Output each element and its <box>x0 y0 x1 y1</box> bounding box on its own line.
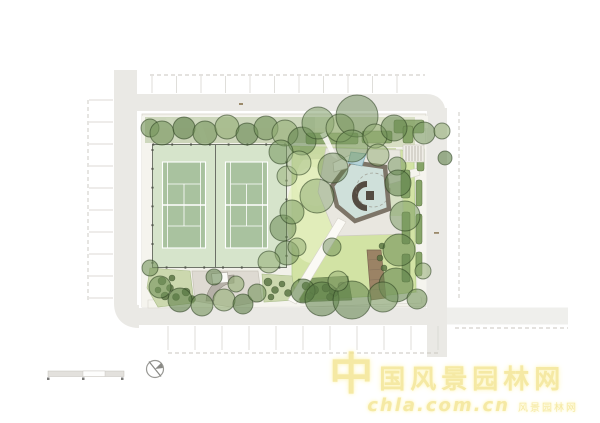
tree-canopy <box>381 115 407 141</box>
hedge <box>416 180 422 206</box>
tree-canopy <box>206 269 222 285</box>
road-marking <box>239 103 243 105</box>
tree-canopy <box>248 284 266 302</box>
building-core-block <box>366 191 374 200</box>
tree-canopy <box>215 115 239 139</box>
shrub <box>381 265 387 271</box>
tree-canopy <box>415 263 431 279</box>
tree-canopy <box>258 251 280 273</box>
shrub <box>285 290 292 297</box>
scale-tick <box>82 378 85 381</box>
tree-canopy <box>213 289 235 311</box>
shrub <box>377 255 383 261</box>
tree-canopy <box>142 260 158 276</box>
tennis-court-1 <box>163 162 206 248</box>
tree-canopy <box>150 121 174 145</box>
tree-canopy <box>368 282 398 312</box>
tree-canopy <box>228 276 244 292</box>
site-plan-drawing <box>0 0 600 423</box>
tree-canopy <box>288 238 306 256</box>
tree-canopy <box>390 201 420 231</box>
tree-canopy <box>438 151 452 165</box>
tree-canopy <box>173 117 195 139</box>
tree-canopy <box>385 170 411 196</box>
tree-canopy <box>280 200 304 224</box>
shrub <box>169 275 175 281</box>
street-north <box>137 103 437 114</box>
shrub <box>279 281 285 287</box>
tennis-courts <box>153 145 287 268</box>
tree-canopy <box>287 151 311 175</box>
tree-canopy <box>193 121 217 145</box>
tree-canopy <box>323 238 341 256</box>
tree-canopy <box>318 153 348 183</box>
tree-canopy <box>367 144 389 166</box>
street-west <box>126 70 140 317</box>
east-entrance-steps <box>403 145 424 162</box>
tree-canopy <box>434 123 450 139</box>
north-arrow <box>147 361 164 378</box>
road-marking <box>434 232 439 234</box>
shrub <box>268 294 274 300</box>
tennis-court-2 <box>226 162 268 248</box>
tree-canopy <box>168 288 192 312</box>
tree-canopy <box>328 271 348 291</box>
tree-canopy <box>149 276 171 298</box>
tree-canopy <box>191 294 213 316</box>
scale-tick <box>121 378 124 381</box>
site-plan-canvas: 中 国风景园林网 chla.com.cn 风景园林网 <box>0 0 600 423</box>
scale-tick <box>47 378 50 381</box>
tree-canopy <box>383 234 415 266</box>
tree-canopy <box>300 179 334 213</box>
scale-bar <box>47 371 124 380</box>
shrub <box>272 287 279 294</box>
tree-canopy <box>413 122 435 144</box>
tree-canopy <box>407 289 427 309</box>
shrub <box>264 278 272 286</box>
scale-bar-segment <box>83 371 105 377</box>
